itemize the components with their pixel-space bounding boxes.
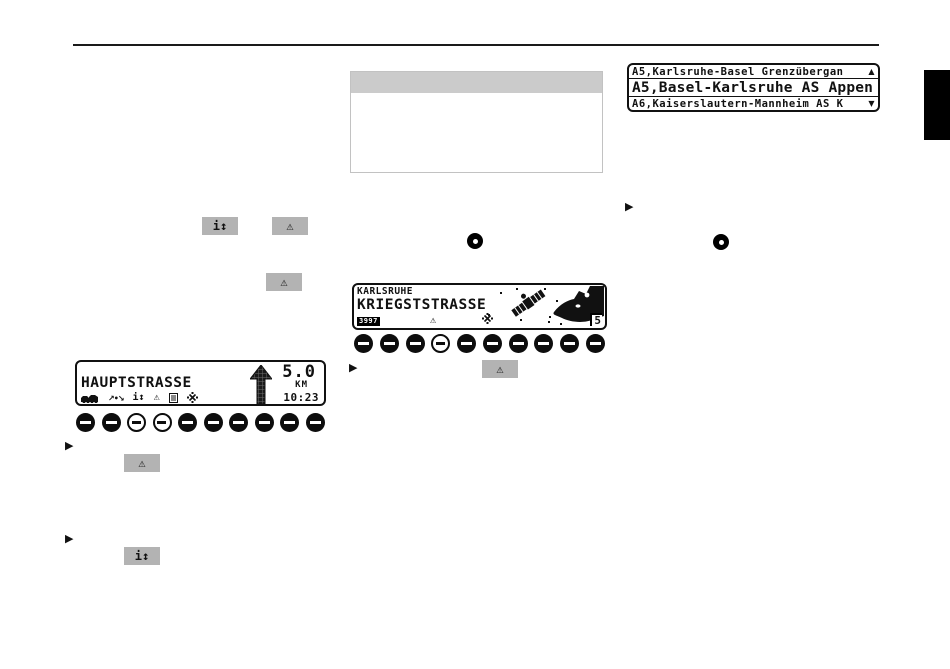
traffic-warning-key-icon: ⚠ — [482, 360, 518, 378]
bullet-marker: ▶ — [65, 533, 73, 544]
route-list-text: A6,Kaiserslautern-Mannheim AS K — [632, 98, 843, 110]
distance-unit: KM — [295, 380, 308, 390]
route-arrows-icon: ↗•↘ — [108, 395, 124, 403]
route-list-text: A5,Karlsruhe-Basel Grenzübergan — [632, 66, 843, 78]
softkey-button — [102, 413, 121, 432]
route-list-line: A6,Kaiserslautern-Mannheim AS K ▼ — [629, 97, 878, 110]
bullet-marker: ▶ — [65, 440, 73, 451]
satellite-map-graphic — [486, 286, 604, 327]
route-list-display: A5,Karlsruhe-Basel Grenzübergan ▲ A5,Bas… — [627, 63, 880, 112]
tmc-info-key-icon: i↕ — [202, 217, 238, 235]
direction-arrow-icon — [250, 365, 272, 404]
warning-icon: ⚠ — [430, 316, 436, 326]
status-icon-row: ↗•↘ i↕ ⚠ — [81, 391, 198, 403]
page-edge-tab — [924, 70, 950, 140]
tmc-info-key-icon: i↕ — [124, 547, 160, 565]
route-guidance-display: HAUPTSTRASSE ↗•↘ i↕ ⚠ — [75, 360, 326, 406]
softkey-button — [76, 413, 95, 432]
scroll-down-icon: ▼ — [868, 99, 875, 108]
info-updown-icon: i↕ — [133, 393, 145, 403]
info-table — [350, 71, 603, 173]
softkey-button — [509, 334, 528, 353]
list-icon — [169, 393, 178, 403]
softkey-button — [153, 413, 172, 432]
softkey-button — [560, 334, 579, 353]
softkey-button — [354, 334, 373, 353]
softkey-button — [306, 413, 325, 432]
street-name: HAUPTSTRASSE — [81, 375, 192, 391]
traffic-warning-key-icon: ⚠ — [266, 273, 302, 291]
info-table-header — [351, 72, 602, 93]
traffic-warning-key-icon: ⚠ — [272, 217, 308, 235]
traffic-jam-icon — [81, 393, 99, 403]
softkey-row — [354, 334, 605, 353]
satellite-icon — [507, 286, 546, 318]
manual-page: A5,Karlsruhe-Basel Grenzübergan ▲ A5,Bas… — [0, 0, 950, 669]
city-name: KARLSRUHE — [357, 286, 413, 297]
softkey-button — [380, 334, 399, 353]
softkey-button — [457, 334, 476, 353]
traffic-warning-key-icon: ⚠ — [124, 454, 160, 472]
softkey-button — [178, 413, 197, 432]
route-list-selected-line: A5,Basel-Karlsruhe AS Appen — [629, 78, 878, 97]
softkey-button — [586, 334, 605, 353]
softkey-button — [204, 413, 223, 432]
route-list-line: A5,Karlsruhe-Basel Grenzübergan ▲ — [629, 65, 878, 78]
junction-icon — [187, 392, 198, 403]
softkey-row — [76, 413, 325, 432]
softkey-button — [229, 413, 248, 432]
press-knob-icon — [713, 234, 729, 250]
scroll-up-icon: ▲ — [868, 67, 875, 76]
softkey-button — [280, 413, 299, 432]
softkey-button — [431, 334, 450, 353]
street-name: KRIEGSTSTRASSE — [357, 297, 486, 313]
bullet-marker: ▶ — [625, 201, 633, 212]
softkey-button — [127, 413, 146, 432]
bullet-marker: ▶ — [349, 362, 357, 373]
warning-icon: ⚠ — [154, 393, 160, 403]
route-list-selected-text: A5,Basel-Karlsruhe AS Appen — [632, 80, 873, 96]
distance-value: 5.0 — [282, 362, 316, 382]
softkey-button — [534, 334, 553, 353]
softkey-button — [483, 334, 502, 353]
press-knob-icon — [467, 233, 483, 249]
softkey-button — [406, 334, 425, 353]
softkey-button — [255, 413, 274, 432]
station-badge: 3997 — [357, 317, 380, 326]
top-rule — [73, 44, 879, 46]
location-display: KARLSRUHE KRIEGSTSTRASSE 3997 ⚠ — [352, 283, 607, 330]
satellite-count: 5 — [590, 313, 602, 326]
clock-time: 10:23 — [283, 391, 319, 404]
